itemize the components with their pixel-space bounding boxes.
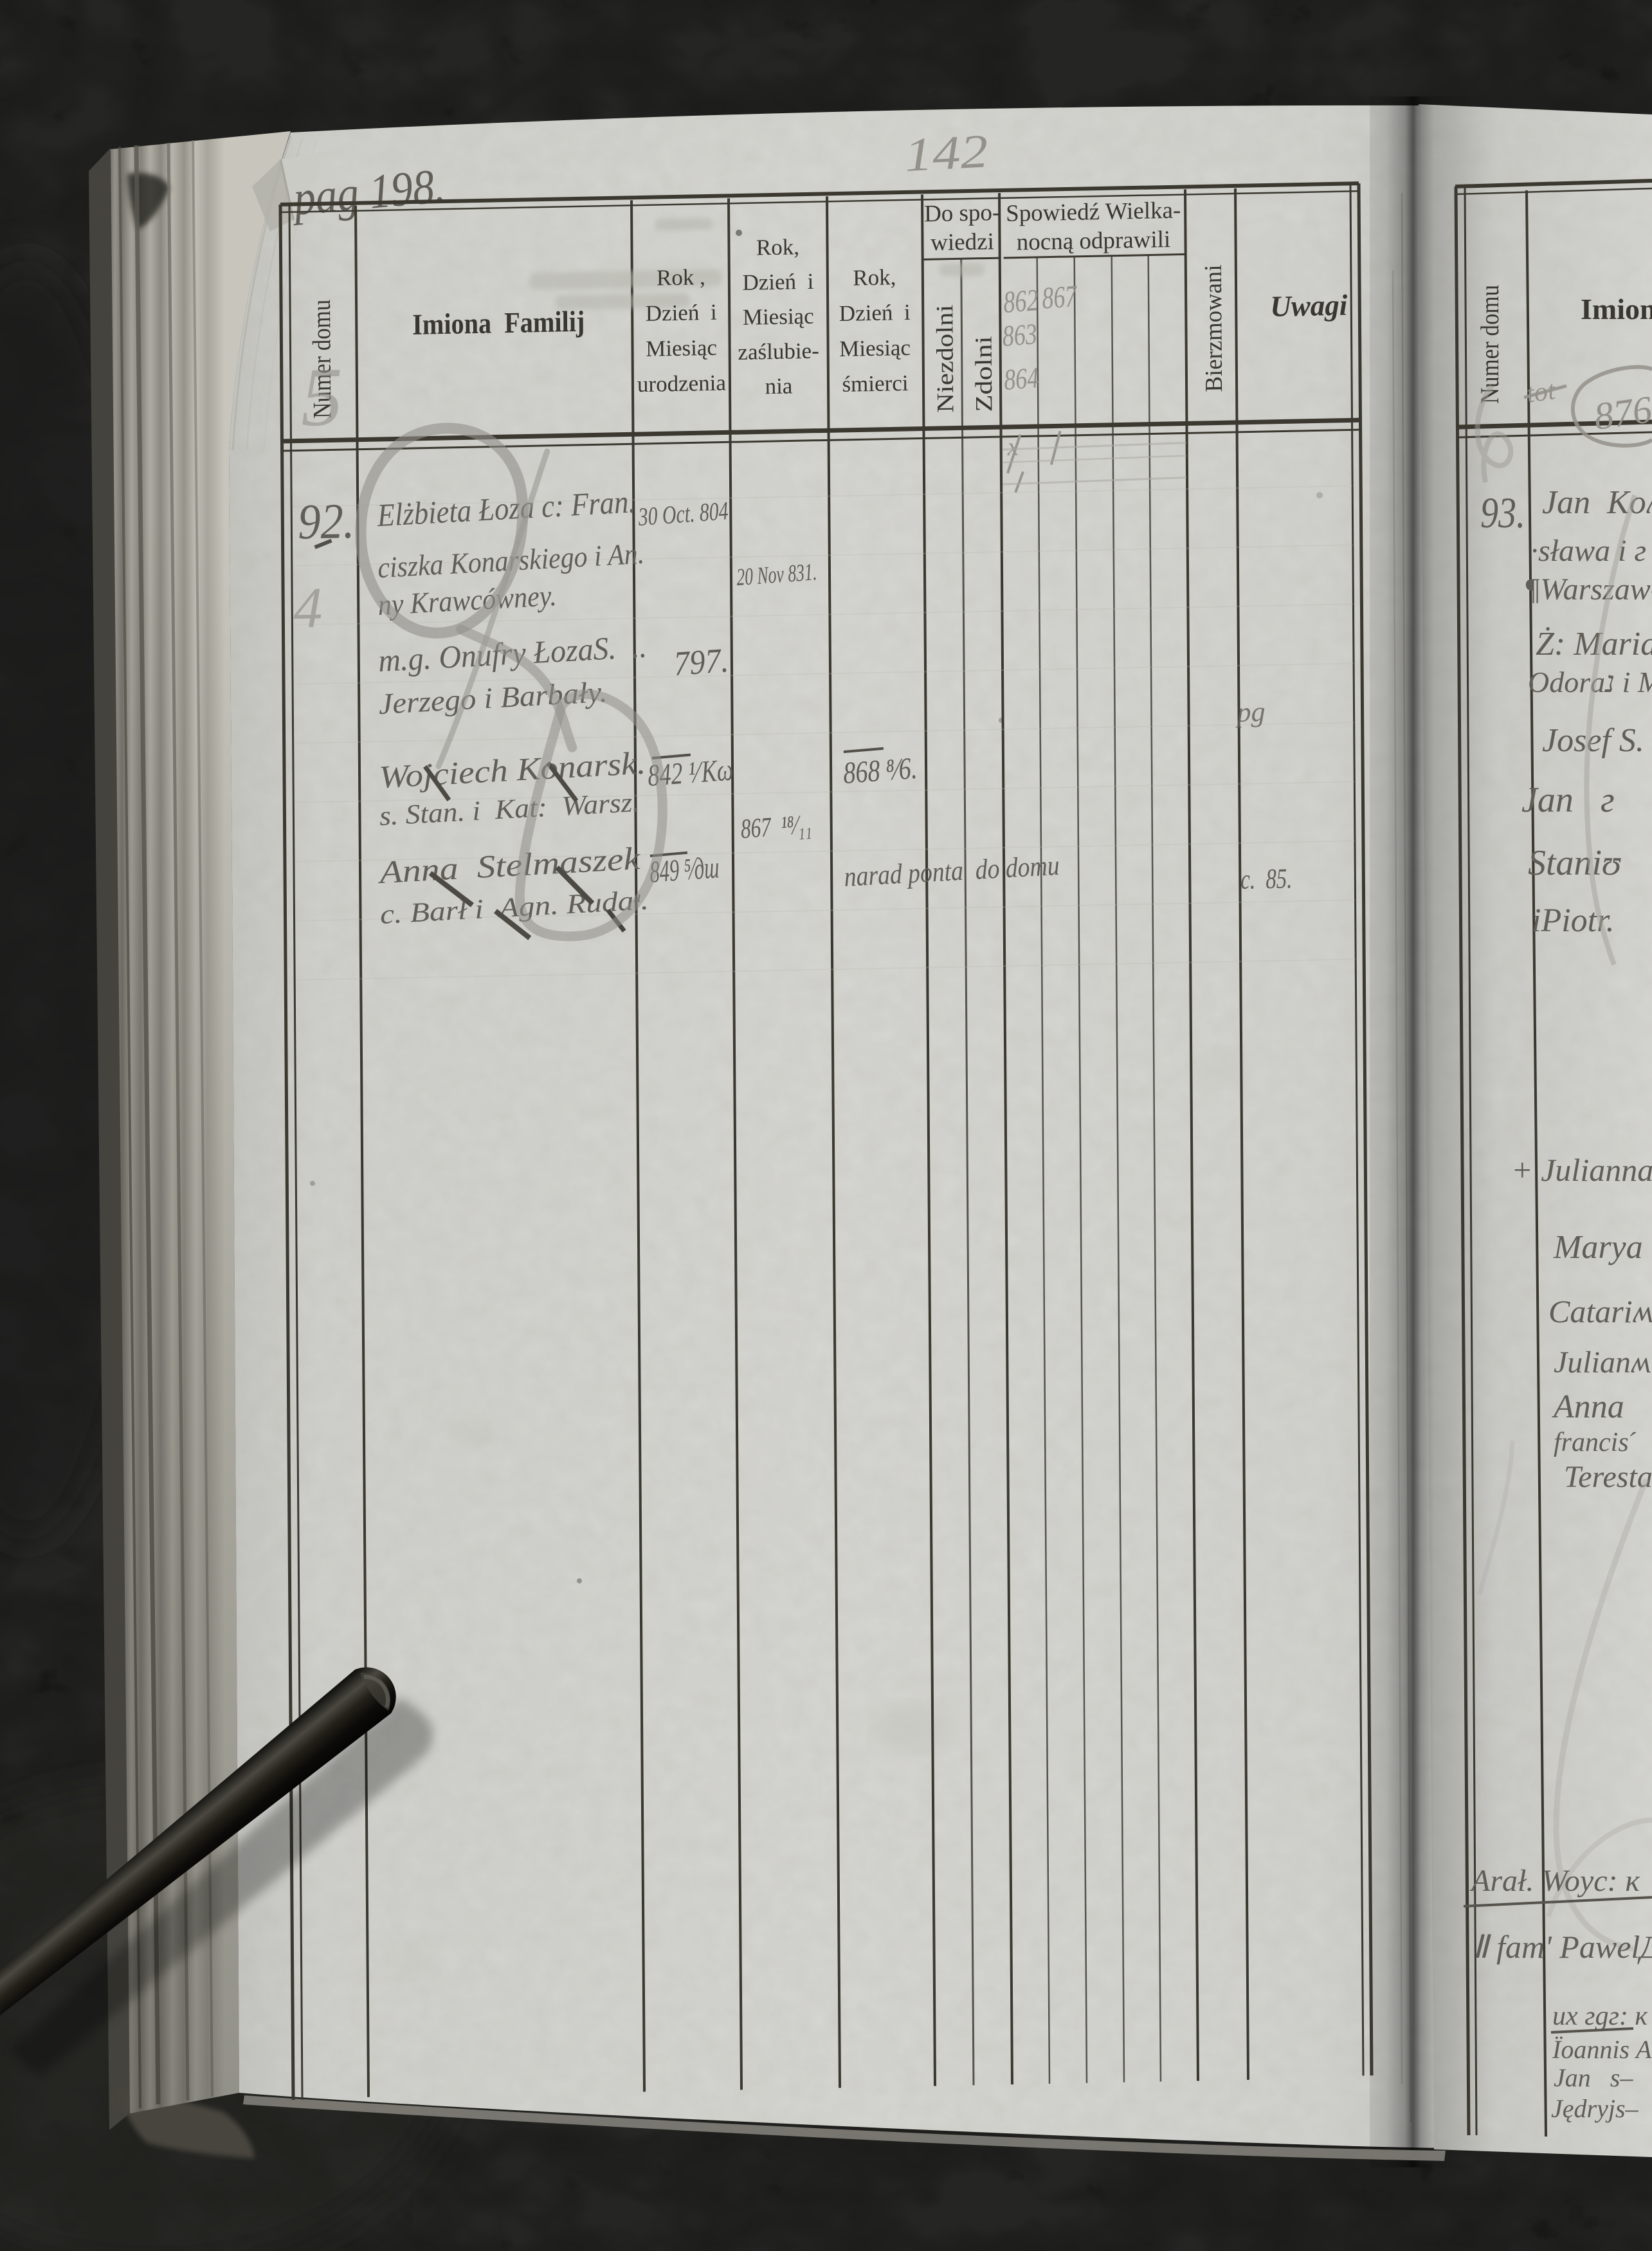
svg-text:Jędryјs–: Jędryјs–: [1551, 2094, 1639, 2123]
svg-text:·sława i г: ·sława i г: [1530, 534, 1646, 568]
svg-text:Spowiedź Wielka-: Spowiedź Wielka-: [1006, 197, 1181, 227]
svg-text:Maryа: Maryа: [1553, 1229, 1643, 1266]
svg-text:Do spo-: Do spo-: [924, 199, 1000, 227]
svg-text:864: 864: [1003, 361, 1040, 396]
svg-text:93.: 93.: [1480, 488, 1525, 537]
svg-text:Julianʍ: Julianʍ: [1554, 1345, 1651, 1380]
svg-text:867: 867: [1041, 279, 1079, 316]
svg-text:Bierzmowani: Bierzmowani: [1200, 264, 1228, 392]
svg-text:Rok ,: Rok ,: [657, 264, 705, 290]
svg-text:ux гgг: к: ux гgг: к: [1552, 2001, 1647, 2031]
svg-text:zaślubie-: zaślubie-: [738, 338, 819, 365]
svg-text:4: 4: [293, 576, 323, 641]
svg-text:Terestа: Terestа: [1564, 1460, 1652, 1494]
svg-text:nocną odprawili: nocną odprawili: [1017, 226, 1171, 256]
svg-text:5: 5: [301, 351, 343, 444]
svg-text:¶Warszaw-: ¶Warszaw-: [1524, 572, 1652, 606]
svg-text:Ż: Maria: Ż: Maria: [1536, 626, 1652, 662]
svg-text:śmierci: śmierci: [842, 370, 909, 397]
svg-text:urodzenia: urodzenia: [637, 370, 727, 397]
svg-text:Staniʊ: Staniʊ: [1528, 843, 1621, 883]
svg-text:Ⅱ famʹ PawelД: Ⅱ famʹ PawelД: [1473, 1929, 1652, 1965]
svg-text:Josef S.: Josef S.: [1542, 722, 1644, 759]
svg-text:Jan Koʍ: Jan Koʍ: [1542, 484, 1652, 521]
svg-text:Miesiąc: Miesiąc: [839, 335, 911, 361]
svg-text:20 Nov 831.: 20 Nov 831.: [736, 558, 817, 591]
svg-text:Imiona Familij: Imiona Familij: [412, 305, 585, 341]
svg-text:Dzień i: Dzień i: [742, 269, 813, 295]
svg-text:Rok,: Rok,: [756, 234, 799, 260]
svg-text:876: 876: [1592, 388, 1652, 438]
svg-text:863: 863: [1001, 317, 1038, 352]
svg-text:nia: nia: [765, 373, 792, 399]
svg-text:Miesiąc: Miesiąc: [743, 304, 814, 330]
svg-text:Їoannіs А: Їoannіs А: [1552, 2035, 1652, 2064]
svg-text:Zdolni: Zdolni: [971, 336, 998, 412]
svg-text:wiedzi: wiedzi: [930, 228, 994, 256]
svg-text:797.: 797.: [673, 641, 729, 683]
svg-text:Miesiąc: Miesiąc: [646, 335, 717, 361]
svg-text:Dzień i: Dzień i: [839, 300, 911, 326]
svg-text:c. 85.: c. 85.: [1240, 862, 1292, 895]
svg-text:868 ⁸⁄6.: 868 ⁸⁄6.: [842, 751, 918, 790]
svg-text:francisˊ: francisˊ: [1554, 1428, 1638, 1457]
svg-text:Jan г: Jan г: [1521, 780, 1615, 820]
svg-text:Jan s–: Jan s–: [1554, 2063, 1633, 2092]
svg-text:Аrał. Woyс: к: Аrał. Woyс: к: [1469, 1864, 1640, 1898]
svg-text:862: 862: [1003, 283, 1039, 320]
svg-text:867 ¹⁸⁄₁₁: 867 ¹⁸⁄₁₁: [740, 809, 813, 844]
svg-text:+ Juliannа: + Juliannа: [1511, 1152, 1652, 1188]
svg-text:142: 142: [903, 125, 990, 182]
svg-text:Imiona F: Imiona F: [1581, 293, 1652, 325]
svg-text:Anna: Anna: [1552, 1389, 1624, 1425]
svg-text:Uwagi: Uwagi: [1270, 289, 1348, 323]
svg-text:Rok,: Rok,: [853, 264, 896, 290]
svg-text:рg: рg: [1235, 696, 1265, 728]
svg-text:Niezdolni: Niezdolni: [932, 304, 959, 413]
svg-text:Dzień i: Dzień i: [646, 300, 717, 326]
svg-text:Catariʍ: Catariʍ: [1548, 1293, 1652, 1329]
